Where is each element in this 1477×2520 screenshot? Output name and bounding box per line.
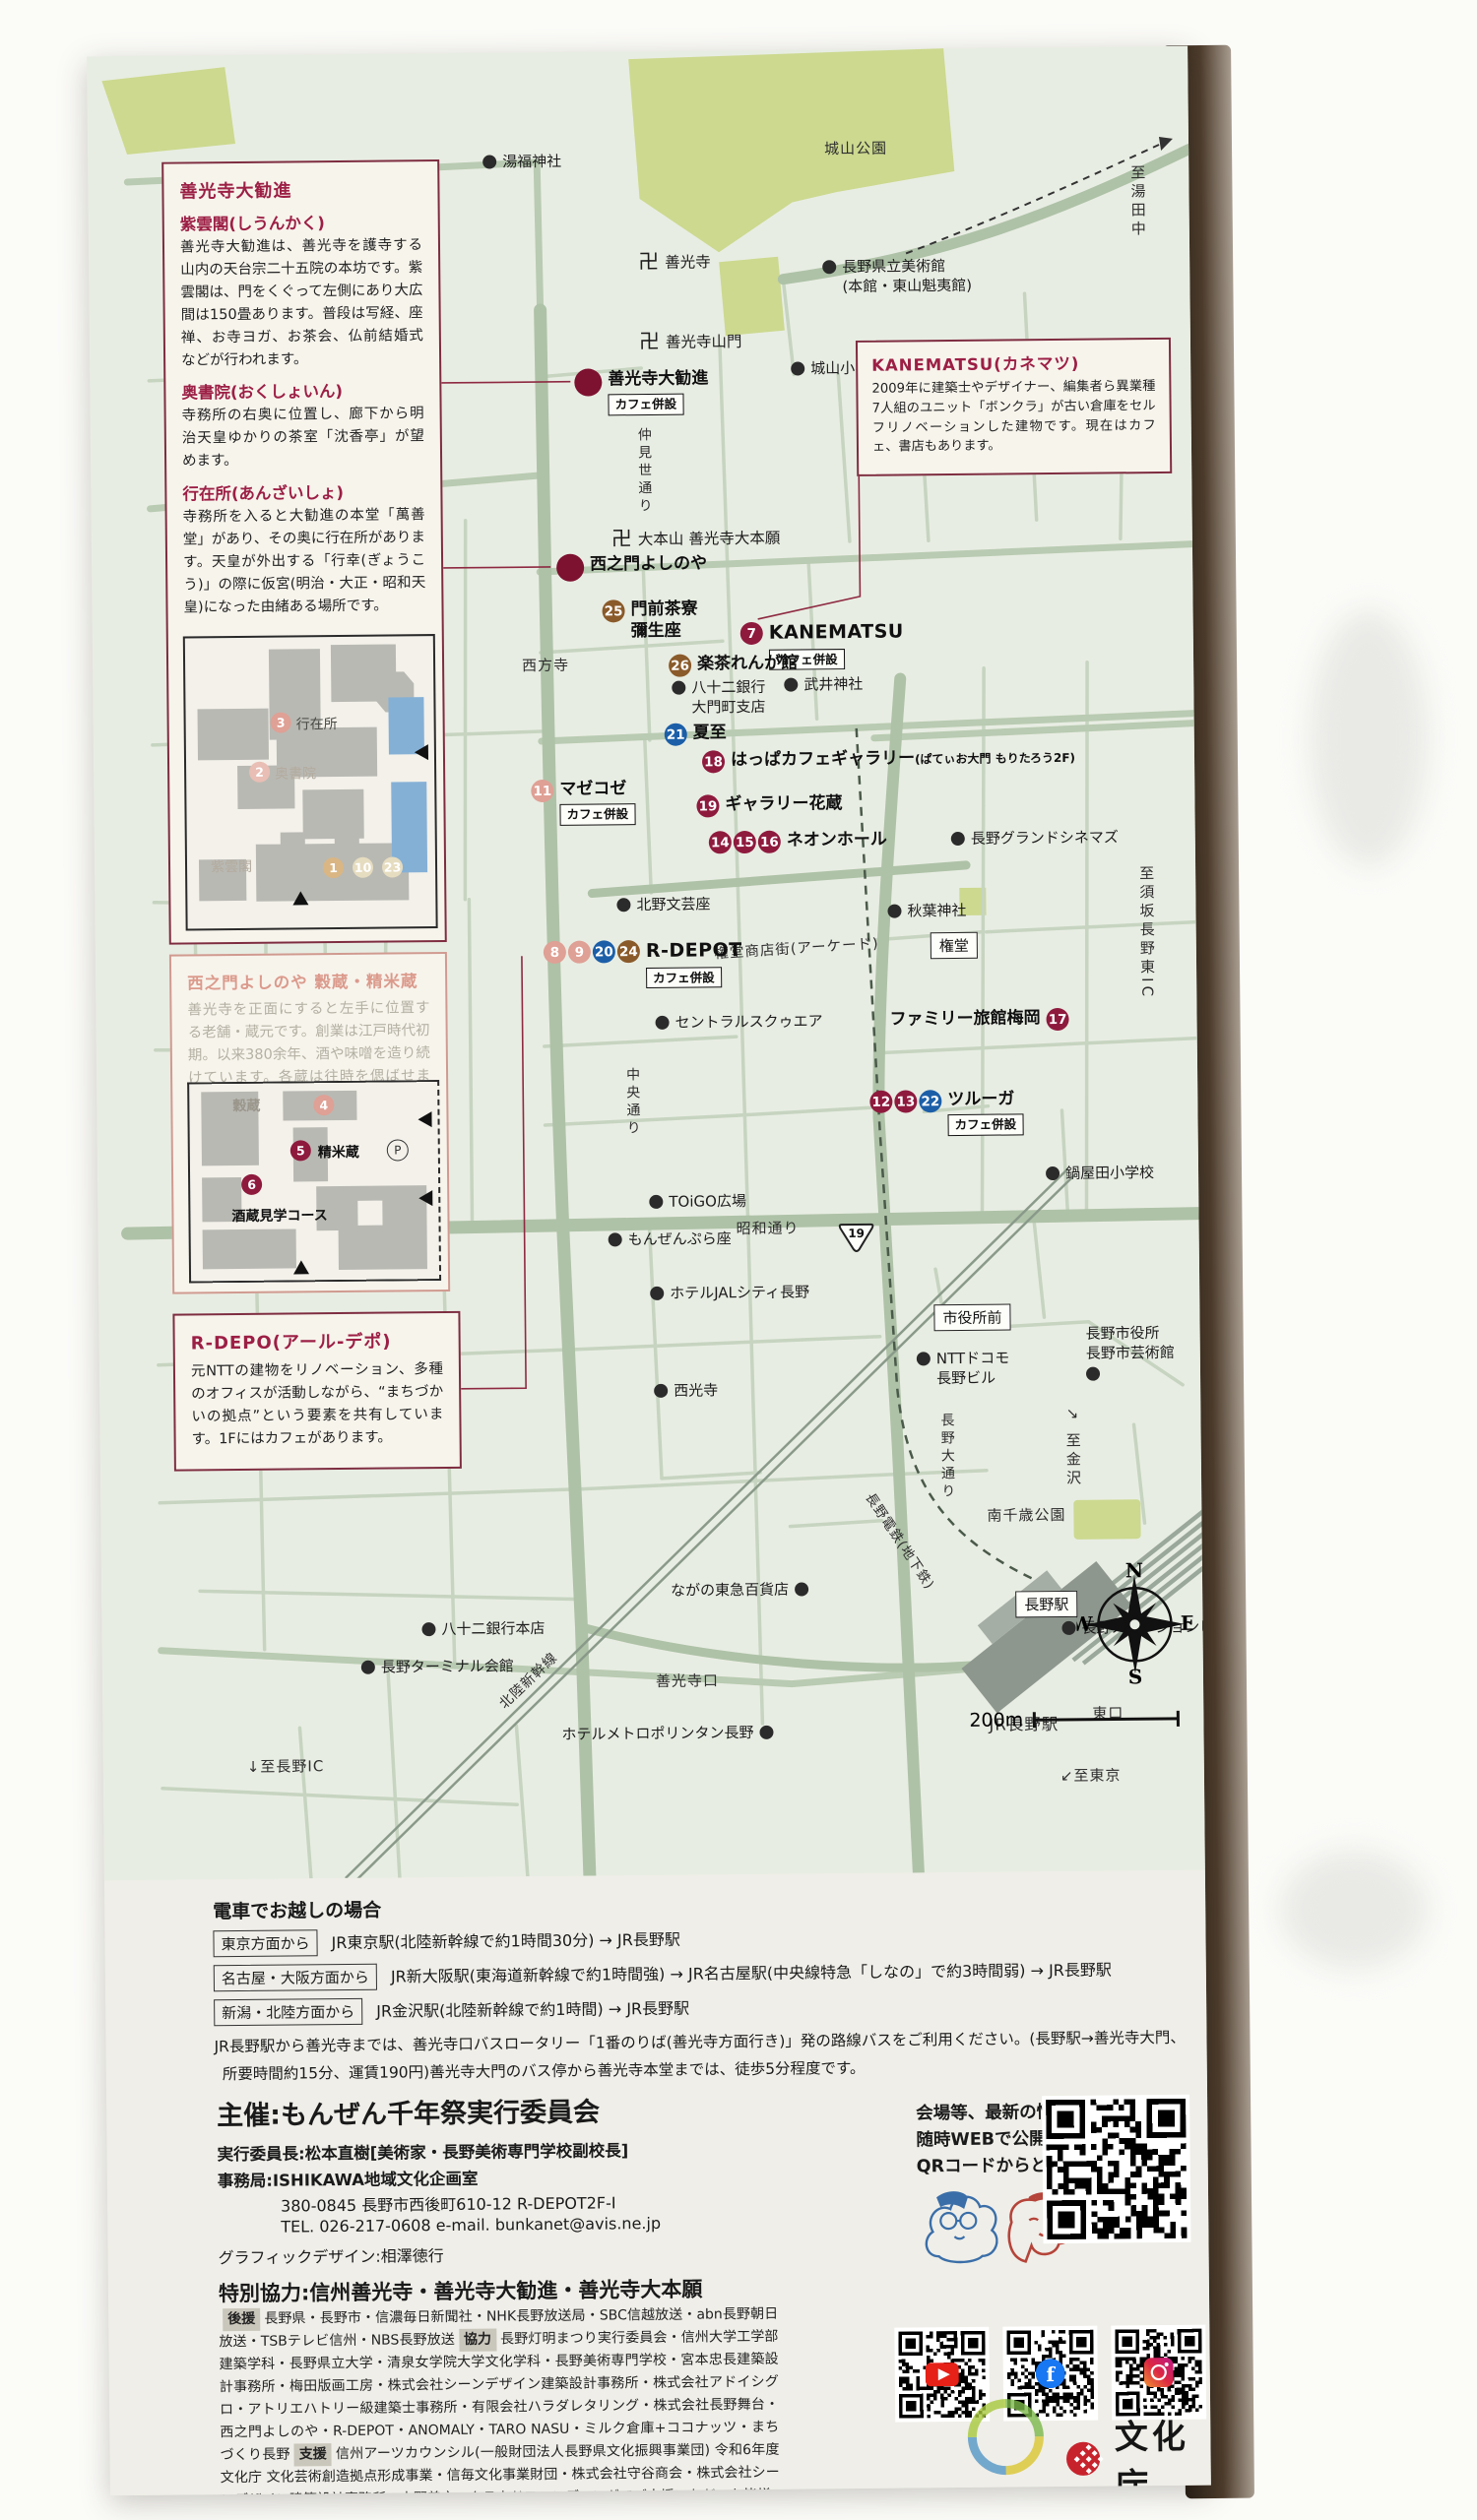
venue-number-marker: 25 <box>602 599 624 622</box>
temple-label: 大本山 善光寺大本願 <box>638 527 781 549</box>
photo-smudge <box>1310 610 1428 866</box>
venue-number-marker: 26 <box>669 655 691 677</box>
yoshinoya-inset-map: 456穀蔵精米蔵酒蔵見学コースP <box>187 1080 441 1283</box>
organizer-office: 事務局:ISHIKAWA地域文化企画室 <box>218 2166 479 2192</box>
rdepo-body: 元NTTの建物をリノベーション、多種のオフィスが活動しながら、“まちづかいの拠点… <box>191 1358 444 1451</box>
instagram-qr-code <box>1111 2325 1206 2421</box>
venue-item: 121322ツルーガカフェ併設 <box>869 1088 1023 1136</box>
venue-markers: 11 <box>531 779 553 802</box>
venue-label: 西之門よしのや <box>590 552 707 575</box>
poi-dot <box>795 1582 808 1596</box>
poi-dot <box>421 1622 435 1636</box>
venue-label: ツルーガカフェ併設 <box>947 1088 1023 1135</box>
credits-paragraph: 後援長野県・長野市・信濃毎日新聞社・NHK長野放送局・SBC信越放送・abn長野… <box>219 2303 780 2496</box>
map-poi: 湯福神社 <box>482 153 561 172</box>
inset-label: 奥書院 <box>275 763 316 783</box>
venue-label: ファミリー旅館梅岡 <box>889 1007 1040 1031</box>
venue-markers: 18 <box>702 749 725 773</box>
map-pamphlet: 湯福神社長野県立美術館(本館・東山魁夷館)城山小学校八十二銀行大門町支店武井神社… <box>87 46 1211 2496</box>
map-poi: 北野文芸座 <box>616 895 710 914</box>
bunkacho-logo: 文化庁 <box>1062 2410 1211 2496</box>
yoshinoya-info-box: 西之門よしのや 穀蔵・精米蔵 善光寺を正面にすると左手に位置する老舗・蔵元です。… <box>169 952 450 1294</box>
inset-label: 穀蔵 <box>232 1096 260 1115</box>
credit-tag: 協力 <box>459 2329 496 2352</box>
venue-label: ギャラリー花蔵 <box>725 792 842 815</box>
mascot-blue-icon <box>917 2187 998 2275</box>
venue-number-marker: 15 <box>734 831 756 853</box>
access-row: 名古屋・大阪方面からJR新大阪駅(東海道新幹線で約1時間強) → JR名古屋駅(… <box>214 1957 1112 1992</box>
info-section-heading: 行在所(あんざいしょ) <box>182 478 424 504</box>
venue-label: 楽茶れんが館 <box>697 653 798 675</box>
venue-markers: 121322 <box>869 1089 941 1113</box>
svg-text:W: W <box>1076 1612 1093 1636</box>
cafe-badge: カフェ併設 <box>608 389 708 414</box>
venue-number-marker: 17 <box>1046 1008 1068 1031</box>
map-poi: ホテルメトロポリンタン長野 <box>561 1724 773 1745</box>
venue-label: R-DEPOTカフェ併設 <box>646 938 742 988</box>
street-label: 南千歳公園 <box>987 1504 1065 1526</box>
venue-item: 26楽茶れんが館 <box>669 653 798 677</box>
poi-label: もんぜんぷら座 <box>628 1229 732 1250</box>
inset-number-marker: 6 <box>241 1174 262 1195</box>
street-label: 城山公園 <box>824 138 887 159</box>
venue-markers: 19 <box>696 793 719 817</box>
inset-label: 紫雲閣 <box>211 856 252 876</box>
kanematsu-info-box: KANEMATSU(カネマツ) 2009年に建築士やデザイナー、編集者ら異業種7… <box>856 338 1172 476</box>
venue-number-marker: 14 <box>709 831 732 853</box>
street-label: 善光寺口 <box>656 1669 719 1691</box>
kanematsu-title: KANEMATSU(カネマツ) <box>871 349 1155 376</box>
poi-dot <box>482 155 496 168</box>
yoshinoya-title: 西之門よしのや 穀蔵・精米蔵 <box>187 968 429 993</box>
map-poi: 秋葉神社 <box>887 902 966 921</box>
info-section-body: 寺務所を入ると大勧進の本堂「萬善堂」があり、その奥に行在所があります。天皇が外出… <box>183 504 426 619</box>
organizer-heading: 主催:もんぜん千年祭実行委員会 <box>217 2091 600 2133</box>
venue-label: ネオンホール <box>787 829 887 851</box>
facebook-icon: f <box>1036 2359 1065 2388</box>
direction-label: ↓至長野IC <box>247 1755 325 1777</box>
access-and-credits-panel: 電車でお越しの場合 東京方面からJR東京駅(北陸新幹線で約1時間30分) → J… <box>104 1870 1211 2496</box>
map-poi: 長野ターミナル会館 <box>361 1657 514 1677</box>
poi-label: NTTドコモ長野ビル <box>936 1349 1010 1388</box>
manji-icon: 卍 <box>638 251 659 272</box>
inset-number-marker: 4 <box>313 1095 334 1115</box>
venue-item: 11マゼコゼカフェ併設 <box>531 778 635 826</box>
info-section-heading: 紫雲閣(しうんかく) <box>180 209 422 234</box>
street-label: 昭和通り <box>736 1218 799 1239</box>
temple-label: 善光寺 <box>665 250 711 272</box>
street-label: 西方寺 <box>522 655 569 675</box>
info-section-body: 善光寺大勧進は、善光寺を護寺する山内の天台宗二十五院の本坊です。紫雲閣は、門をく… <box>180 234 423 372</box>
info-section-body: 寺務所の右奥に位置し、廊下から明治天皇ゆかりの茶室「沈香亭」が望めます。 <box>182 404 425 473</box>
svg-text:19: 19 <box>848 1227 865 1240</box>
map-poi: NTTドコモ長野ビル <box>917 1349 1010 1388</box>
bus-note-line1: JR長野駅から善光寺までは、善光寺口バスロータリー「1番のりば(善光寺方面行き)… <box>214 2026 1186 2056</box>
rdepo-title: R-DEPO(アール-デポ) <box>191 1327 443 1354</box>
map-poi: TOiGO広場 <box>649 1192 746 1212</box>
map-poi: 武井神社 <box>784 675 863 695</box>
inset-number-marker: 5 <box>290 1140 311 1161</box>
inset-label: 行在所 <box>296 714 338 733</box>
poi-dot <box>616 898 630 912</box>
venue-item: 21夏至 <box>665 722 727 746</box>
route-19-shield: 19 <box>839 1223 874 1254</box>
rdepo-info-box: R-DEPO(アール-デポ) 元NTTの建物をリノベーション、多種のオフィスが活… <box>172 1311 462 1472</box>
poi-label: 北野文芸座 <box>636 895 710 914</box>
organizer-chair: 実行委員長:松本直樹[美術家・長野美術専門学校副校長] <box>217 2137 628 2165</box>
poi-label: 湯福神社 <box>502 153 561 172</box>
access-route: JR新大阪駅(東海道新幹線で約1時間強) → JR名古屋駅(中央線特急「しなの」… <box>391 1961 1112 1986</box>
special-cooperation: 特別協力:信州善光寺・善光寺大勧進・善光寺大本願 <box>219 2274 703 2308</box>
venue-number-marker: 9 <box>568 941 591 964</box>
inset-number-marker: 2 <box>249 762 270 783</box>
map-poi: ホテルJALシティ長野 <box>650 1283 809 1303</box>
direction-label: 至須坂長野東IC <box>1136 865 1158 1000</box>
poi-label: 長野県立美術館(本館・東山魁夷館) <box>842 257 972 296</box>
access-origin-tag: 名古屋・大阪方面から <box>214 1964 377 1992</box>
poi-dot <box>654 1384 668 1398</box>
venue-item: 141516ネオンホール <box>709 829 887 854</box>
main-qr-code <box>1042 2095 1190 2243</box>
venue-number-marker: 13 <box>894 1090 917 1112</box>
manji-icon: 卍 <box>611 529 632 549</box>
photo-smudge <box>1280 1851 1428 1969</box>
venue-item: 25門前茶寮彌生座 <box>602 598 697 642</box>
instagram-icon <box>1144 2358 1174 2387</box>
venue-label: 善光寺大勧進カフェ併設 <box>608 367 708 415</box>
direction-label: ↗ 至金沢 <box>1062 1408 1084 1489</box>
svg-text:N: N <box>1125 1562 1144 1583</box>
venue-number-marker: 11 <box>531 780 553 802</box>
poi-dot <box>1061 1621 1075 1635</box>
poi-label: ホテルメトロポリンタン長野 <box>561 1724 753 1744</box>
direction-label: ↙至東京 <box>1060 1764 1122 1786</box>
map-poi: もんぜんぷら座 <box>609 1229 732 1250</box>
inset-label: 精米蔵 <box>318 1142 359 1162</box>
access-route: JR東京駅(北陸新幹線で約1時間30分) → JR長野駅 <box>331 1930 679 1952</box>
youtube-icon <box>926 2362 959 2386</box>
poi-label: ホテルJALシティ長野 <box>670 1283 809 1303</box>
organizer-tel-email: TEL. 026-217-0608 e-mail. bunkanet@avis.… <box>281 2214 661 2236</box>
venue-markers: 26 <box>669 654 691 677</box>
map-temple: 卍善光寺山門 <box>639 330 742 352</box>
map-poi: 長野市役所長野市芸術館 <box>1086 1324 1176 1381</box>
venue-markers: 17 <box>1046 1007 1068 1031</box>
manji-icon: 卍 <box>639 331 660 351</box>
poi-dot <box>609 1232 622 1246</box>
venue-number-marker: 20 <box>593 940 615 963</box>
poi-dot <box>649 1195 663 1209</box>
poi-dot <box>887 905 901 918</box>
access-origin-tag: 新潟・北陸方面から <box>214 1998 362 2026</box>
station-box: 市役所前 <box>933 1303 1010 1331</box>
map-temple: 卍善光寺 <box>638 250 711 273</box>
poi-label: セントラルスクゥエア <box>674 1012 822 1033</box>
venue-markers: 25 <box>602 598 624 622</box>
poi-dot <box>1086 1367 1100 1381</box>
credit-tag: 後援 <box>223 2308 260 2331</box>
ring-logo <box>964 2395 1048 2483</box>
venue-markers: 21 <box>665 723 687 746</box>
poi-dot <box>361 1661 375 1674</box>
venue-item: ファミリー旅館梅岡17 <box>889 1007 1068 1033</box>
station-box: 権堂 <box>931 932 978 959</box>
temple-label: 善光寺山門 <box>666 330 742 352</box>
venue-dot <box>574 368 602 396</box>
poi-dot <box>656 1016 670 1030</box>
street-label: 中央通り <box>622 1067 643 1138</box>
venue-label: はっぱカフェギャラリー(ぱてぃお大門 もりたろう2F) <box>731 746 1075 771</box>
venue-item: 892024R-DEPOTカフェ併設 <box>544 938 742 989</box>
scale-bar: 200m <box>969 1708 1181 1732</box>
cafe-badge: カフェ併設 <box>947 1109 1023 1135</box>
parking-icon: P <box>387 1139 409 1161</box>
venue-dot <box>556 554 584 582</box>
poi-dot <box>672 681 685 695</box>
street-label: 長野電鉄(地下鉄) <box>862 1488 940 1593</box>
svg-text:S: S <box>1128 1665 1143 1687</box>
poi-label: 武井神社 <box>803 675 863 695</box>
venue-markers <box>556 554 584 582</box>
venue-markers: 141516 <box>709 830 781 854</box>
bus-note-line2: 所要時間約15分、運賃190円)善光寺大門のバス停から善光寺本堂までは、徒歩5分… <box>223 2056 866 2084</box>
direction-label: 至湯田中 <box>1127 164 1149 239</box>
map-poi: 八十二銀行大門町支店 <box>672 678 765 718</box>
cafe-badge: カフェ併設 <box>646 963 742 988</box>
access-origin-tag: 東京方面から <box>213 1929 317 1957</box>
map-poi: 長野県立美術館(本館・東山魁夷館) <box>822 257 972 296</box>
poi-label: 八十二銀行本店 <box>441 1619 545 1640</box>
venue-number-marker: 16 <box>758 831 781 853</box>
poi-label: 鍋屋田小学校 <box>1065 1164 1154 1183</box>
poi-dot <box>650 1287 664 1300</box>
venue-number-marker: 18 <box>702 750 725 773</box>
venue-number-marker: 24 <box>617 940 640 963</box>
station-box: 長野駅 <box>1015 1591 1077 1618</box>
poi-dot <box>759 1726 773 1739</box>
map-poi: 西光寺 <box>654 1381 718 1401</box>
access-row: 東京方面からJR東京駅(北陸新幹線で約1時間30分) → JR長野駅 <box>213 1926 680 1958</box>
graphic-design-credit: グラフィックデザイン:相澤徳行 <box>218 2242 443 2268</box>
venue-item: 西之門よしのや <box>556 552 707 581</box>
daikanjin-inset-map: 3211023行在所奥書院紫雲閣 <box>183 634 438 930</box>
inset-label: 酒蔵見学コース <box>231 1205 327 1226</box>
inset-number-marker: 1 <box>323 857 344 878</box>
map-temple: 卍大本山 善光寺大本願 <box>611 527 781 550</box>
daikanjin-title: 善光寺大勧進 <box>179 175 421 203</box>
poi-dot <box>1046 1166 1060 1180</box>
venue-markers: 892024 <box>544 939 640 964</box>
map-poi: ながの東急百貨店 <box>671 1580 808 1601</box>
venue-number-marker: 8 <box>544 941 566 964</box>
svg-text:E: E <box>1181 1611 1193 1635</box>
access-heading: 電車でお越しの場合 <box>213 1896 381 1924</box>
venue-item: 善光寺大勧進カフェ併設 <box>574 367 708 415</box>
access-route: JR金沢駅(北陸新幹線で約1時間) → JR長野駅 <box>376 1999 689 2021</box>
street-label: 長野大通り <box>936 1413 957 1501</box>
venue-number-marker: 7 <box>740 622 763 645</box>
poi-label: 長野市役所長野市芸術館 <box>1086 1324 1175 1363</box>
compass-rose: N S W E <box>1076 1562 1193 1691</box>
inset-number-marker: 10 <box>353 857 373 878</box>
cafe-badge: カフェ併設 <box>559 799 635 825</box>
poi-dot <box>791 361 804 375</box>
poi-label: 長野グランドシネマズ <box>971 828 1119 849</box>
venue-number-marker: 12 <box>869 1091 892 1113</box>
poi-label: ながの東急百貨店 <box>671 1581 789 1602</box>
credit-tag: 支援 <box>294 2443 332 2466</box>
poi-label: 長野ターミナル会館 <box>381 1657 514 1677</box>
street-label: 仲見世通り <box>634 427 655 516</box>
map-poi: 八十二銀行本店 <box>421 1619 545 1640</box>
poi-dot <box>917 1352 931 1365</box>
venue-number-marker: 19 <box>696 794 719 817</box>
access-row: 新潟・北陸方面からJR金沢駅(北陸新幹線で約1時間) → JR長野駅 <box>214 1995 689 2027</box>
venue-item: 19ギャラリー花蔵 <box>696 792 842 817</box>
poi-dot <box>822 260 836 274</box>
venue-label: 門前茶寮彌生座 <box>630 598 697 642</box>
kanematsu-body: 2009年に建築士やデザイナー、編集者ら異業種7人組のユニット「ボンクラ」が古い… <box>871 377 1156 458</box>
map-poi: 長野グランドシネマズ <box>951 828 1119 849</box>
poi-label: 西光寺 <box>674 1381 718 1401</box>
map-poi: 鍋屋田小学校 <box>1046 1164 1154 1184</box>
venue-markers: 7 <box>740 621 763 645</box>
poi-label: 八十二銀行大門町支店 <box>691 678 765 718</box>
venue-number-marker: 21 <box>665 724 687 746</box>
daikanjin-info-box: 善光寺大勧進 紫雲閣(しうんかく)善光寺大勧進は、善光寺を護寺する山内の天台宗二… <box>161 159 447 945</box>
map-poi: セントラルスクゥエア <box>655 1012 822 1033</box>
poi-dot <box>784 678 798 692</box>
poi-label: 秋葉神社 <box>907 902 966 921</box>
venue-item: 18はっぱカフェギャラリー(ぱてぃお大門 もりたろう2F) <box>702 746 1075 774</box>
venue-markers <box>574 368 602 396</box>
inset-number-marker: 3 <box>271 712 291 732</box>
organizer-address: 380-0845 長野市西後町610-12 R-DEPOT2F-I <box>281 2189 616 2216</box>
poi-dot <box>951 832 965 846</box>
venue-number-marker: 22 <box>919 1090 941 1112</box>
venue-label: マゼコゼカフェ併設 <box>559 778 635 825</box>
poi-label: TOiGO広場 <box>669 1192 746 1212</box>
inset-number-marker: 23 <box>382 856 403 877</box>
venue-label: 夏至 <box>693 722 727 743</box>
info-section-heading: 奥書院(おくしょいん) <box>181 378 423 404</box>
